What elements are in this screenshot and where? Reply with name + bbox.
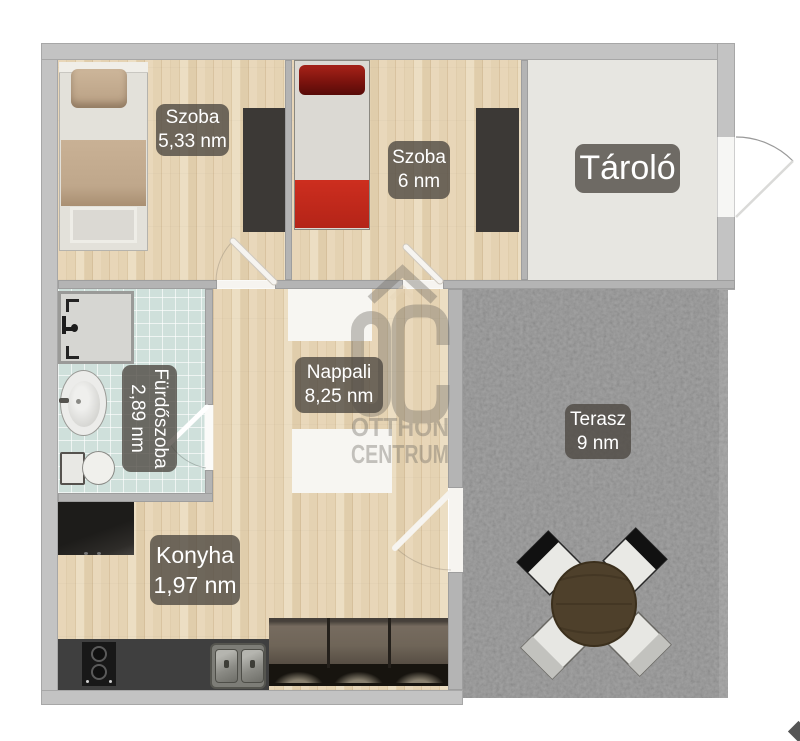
- svg-text:CENTRUM: CENTRUM: [351, 439, 449, 469]
- svg-text:OTTHON: OTTHON: [351, 412, 449, 442]
